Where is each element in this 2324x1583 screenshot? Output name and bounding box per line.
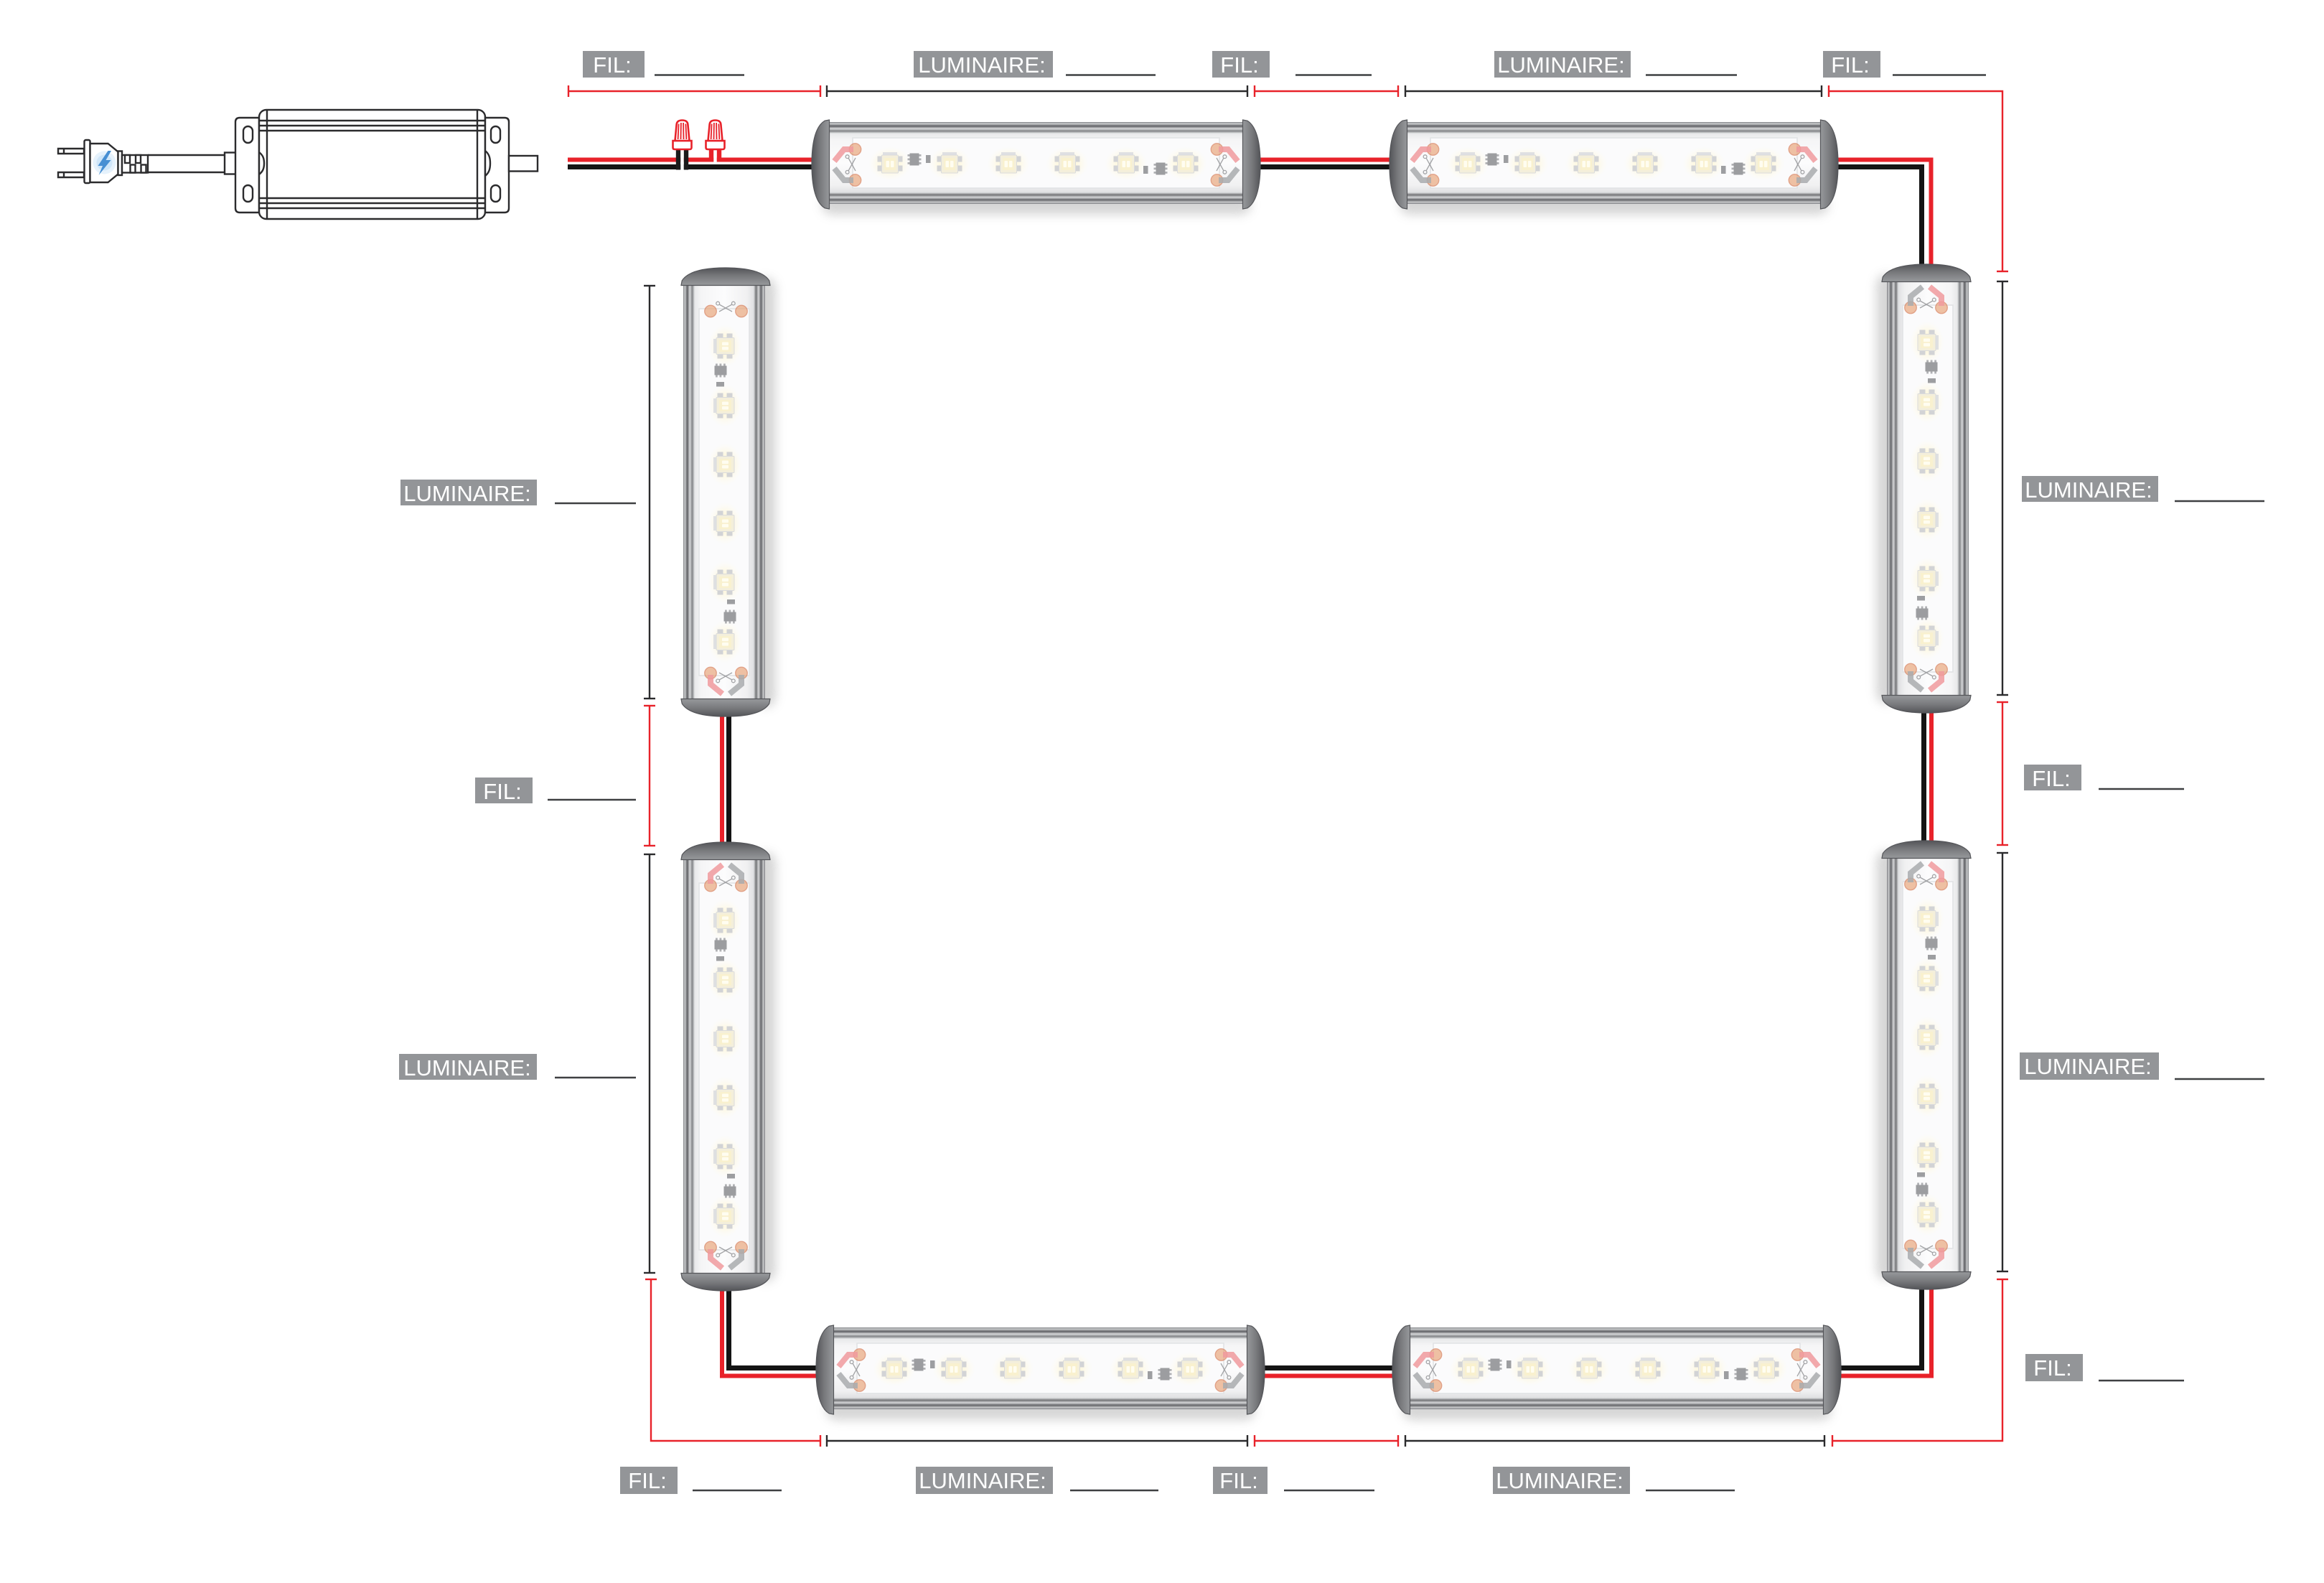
svg-text:LUMINAIRE:: LUMINAIRE:	[2024, 1054, 2151, 1079]
svg-text:LUMINAIRE:: LUMINAIRE:	[918, 52, 1045, 78]
svg-text:FIL:: FIL:	[628, 1468, 666, 1493]
svg-text:FIL:: FIL:	[2032, 766, 2070, 791]
svg-text:LUMINAIRE:: LUMINAIRE:	[919, 1468, 1046, 1493]
svg-text:FIL:: FIL:	[2033, 1355, 2071, 1381]
svg-text:FIL:: FIL:	[1219, 1468, 1257, 1493]
svg-text:LUMINAIRE:: LUMINAIRE:	[1496, 1468, 1623, 1493]
svg-text:LUMINAIRE:: LUMINAIRE:	[403, 481, 530, 506]
svg-text:LUMINAIRE:: LUMINAIRE:	[403, 1055, 530, 1080]
svg-text:FIL:: FIL:	[1220, 52, 1258, 78]
svg-text:LUMINAIRE:: LUMINAIRE:	[1497, 52, 1624, 78]
svg-text:LUMINAIRE:: LUMINAIRE:	[2025, 477, 2152, 503]
svg-text:FIL:: FIL:	[593, 52, 631, 78]
svg-text:FIL:: FIL:	[1831, 52, 1869, 78]
svg-text:FIL:: FIL:	[483, 779, 521, 804]
